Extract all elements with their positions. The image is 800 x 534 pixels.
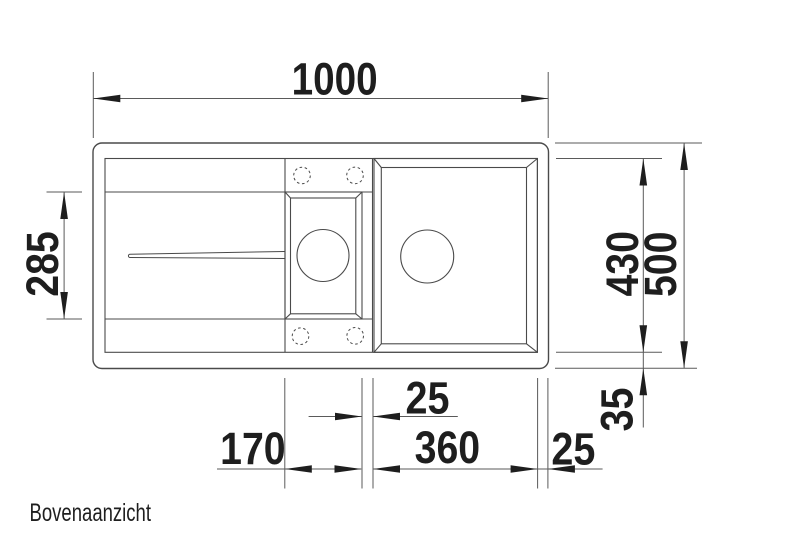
svg-text:Bovenaanzicht: Bovenaanzicht: [30, 499, 152, 527]
svg-text:500: 500: [635, 232, 686, 298]
svg-text:35: 35: [592, 388, 643, 432]
svg-text:1000: 1000: [292, 54, 378, 105]
svg-text:170: 170: [220, 423, 286, 474]
svg-text:360: 360: [415, 422, 481, 473]
svg-text:285: 285: [17, 231, 68, 297]
svg-text:25: 25: [551, 424, 595, 475]
svg-text:25: 25: [406, 373, 450, 424]
